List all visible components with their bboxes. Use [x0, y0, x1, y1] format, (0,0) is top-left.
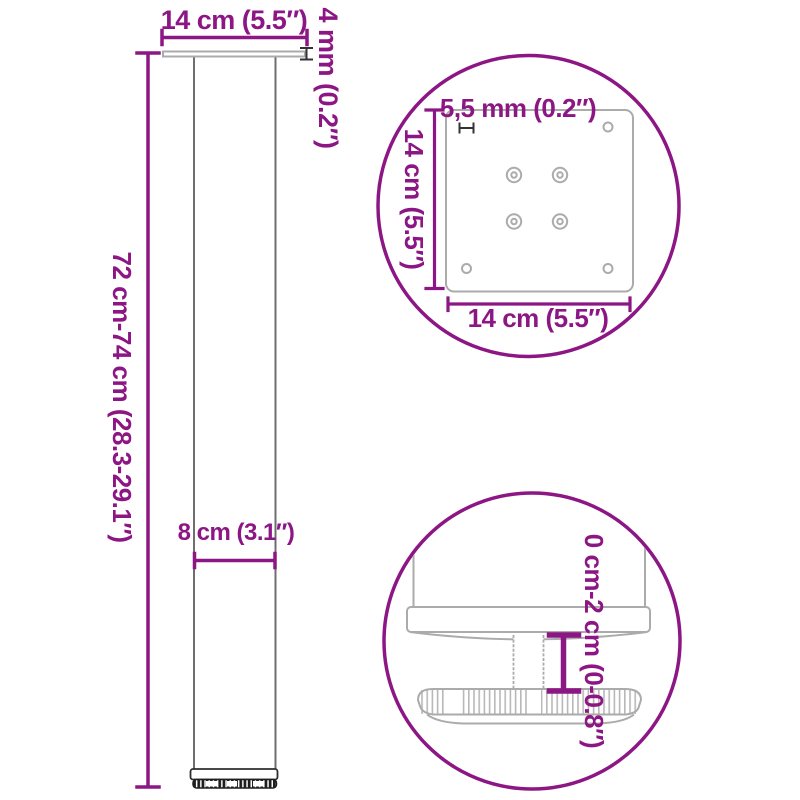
tube-width-label: 8 cm (3.1″) — [178, 519, 295, 546]
top-plate — [163, 52, 305, 57]
foot-collar — [191, 769, 278, 780]
knurled-foot-ring — [193, 780, 277, 789]
height-dim-line — [137, 53, 159, 787]
plate-thickness-label: 4 mm (0.2″) — [313, 8, 343, 149]
foot-collar-detail — [407, 607, 650, 632]
plate-depth-label: 14 cm (5.5″) — [399, 129, 429, 270]
threaded-stem — [514, 633, 544, 689]
height-range-label: 72 cm-74 cm (28.3-29.1″) — [107, 252, 137, 543]
table-leg-illustration — [163, 52, 305, 789]
hole-diameter-label: 5,5 mm (0.2″) — [440, 93, 596, 123]
height-adjustment-label: 0 cm-2 cm (0-0.8″) — [579, 534, 609, 748]
mounting-plate-detail: 5,5 mm (0.2″) 14 cm (5.5″) 14 cm (5.5″) — [378, 56, 679, 357]
adjustable-foot-detail: 0 cm-2 cm (0-0.8″) — [384, 480, 680, 789]
product-dimension-diagram: 14 cm (5.5″) 4 mm (0.2″) 72 cm-74 cm (28… — [0, 0, 800, 800]
leg-tube — [194, 57, 276, 770]
top-width-label: 14 cm (5.5″) — [161, 5, 308, 35]
diagram-svg: 14 cm (5.5″) 4 mm (0.2″) 72 cm-74 cm (28… — [0, 0, 800, 800]
plate-width-label: 14 cm (5.5″) — [468, 303, 609, 333]
